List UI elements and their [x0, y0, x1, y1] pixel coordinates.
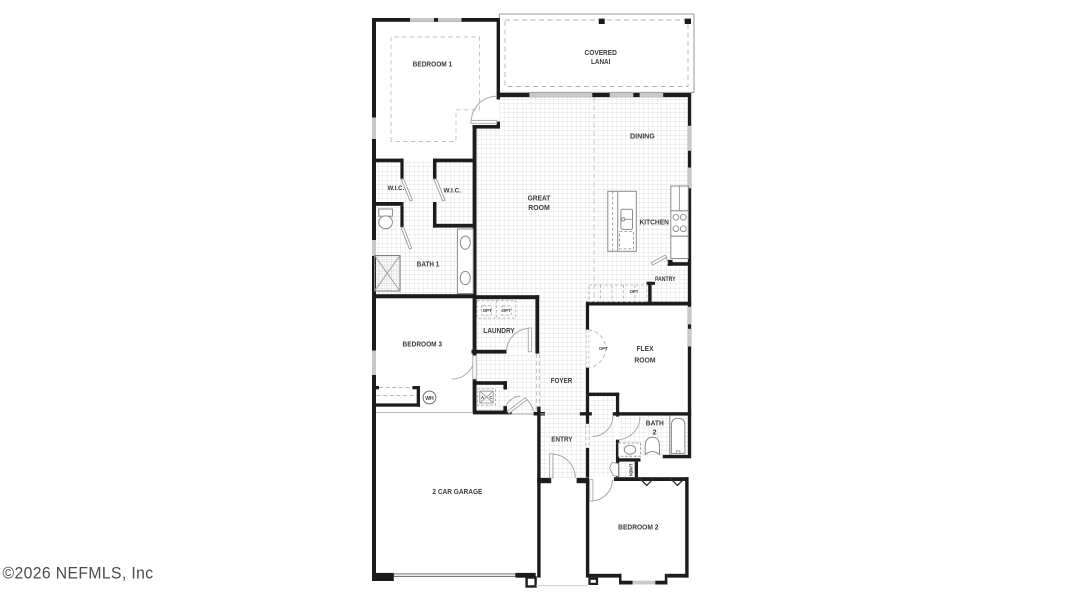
- svg-text:LANAI: LANAI: [591, 57, 610, 66]
- svg-text:©2026 NEFMLS, Inc: ©2026 NEFMLS, Inc: [3, 565, 154, 583]
- svg-text:KITCHEN: KITCHEN: [640, 218, 669, 227]
- svg-text:BATH 1: BATH 1: [417, 259, 440, 268]
- svg-text:C: C: [489, 395, 492, 400]
- svg-text:OPT: OPT: [502, 308, 511, 313]
- svg-text:DINING: DINING: [630, 132, 655, 141]
- svg-text:ROOM: ROOM: [634, 355, 655, 364]
- svg-text:LINEN: LINEN: [629, 464, 634, 477]
- svg-text:FOYER: FOYER: [551, 376, 573, 385]
- svg-text:OPT: OPT: [630, 289, 639, 294]
- svg-text:BEDROOM 2: BEDROOM 2: [618, 523, 658, 532]
- svg-text:A: A: [481, 395, 484, 400]
- svg-text:COVERED: COVERED: [585, 48, 618, 57]
- svg-text:OPT: OPT: [599, 346, 608, 351]
- svg-text:BATH: BATH: [646, 418, 664, 427]
- svg-text:W.I.C.: W.I.C.: [388, 185, 405, 192]
- svg-text:2: 2: [653, 427, 657, 436]
- svg-text:BEDROOM 3: BEDROOM 3: [403, 339, 443, 348]
- svg-text:FLEX: FLEX: [636, 344, 653, 353]
- svg-text:PANTRY: PANTRY: [655, 276, 676, 283]
- svg-text:GREAT: GREAT: [528, 194, 551, 203]
- svg-text:WH: WH: [425, 396, 434, 402]
- svg-text:ROOM: ROOM: [528, 203, 550, 212]
- svg-text:OPT: OPT: [483, 308, 492, 313]
- svg-text:LAUNDRY: LAUNDRY: [483, 326, 515, 335]
- svg-text:W.I.C.: W.I.C.: [444, 187, 462, 194]
- svg-text:ENTRY: ENTRY: [551, 434, 572, 443]
- svg-text:2 CAR GARAGE: 2 CAR GARAGE: [432, 487, 482, 496]
- svg-text:BEDROOM 1: BEDROOM 1: [413, 60, 453, 69]
